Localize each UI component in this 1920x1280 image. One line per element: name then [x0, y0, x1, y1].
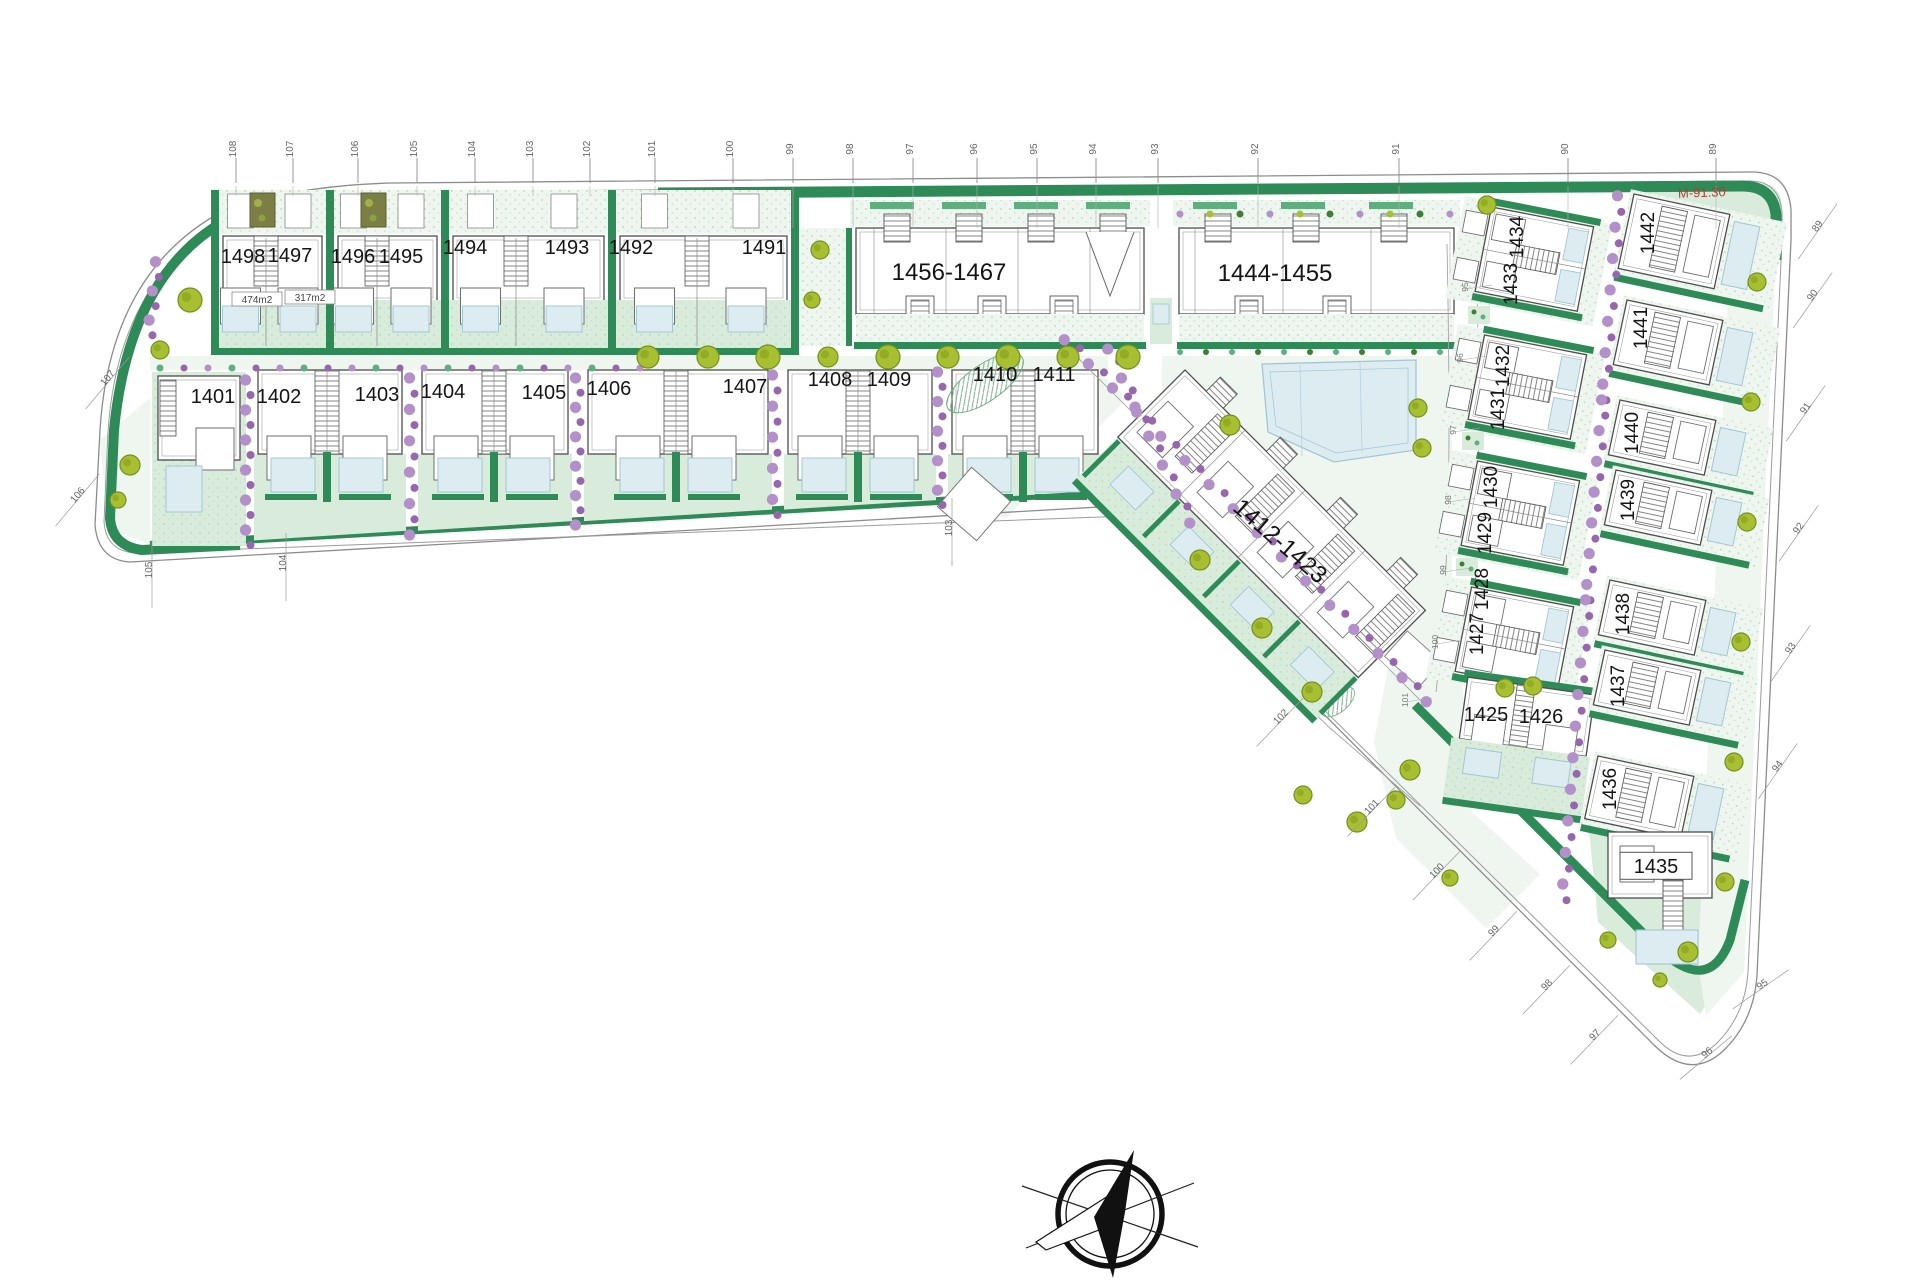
tick-top-92: 92	[1250, 143, 1261, 155]
plot-label-1425: 1425	[1464, 704, 1509, 726]
tick-internal-99: 99	[1438, 565, 1448, 575]
area-label: 317m2	[295, 293, 326, 304]
plot-label-1403: 1403	[355, 384, 400, 406]
tick-perimeter-102: 102	[1271, 707, 1291, 727]
tick-top-93: 93	[1150, 143, 1161, 155]
tick-internal-98: 98	[1443, 495, 1453, 505]
tick-internal-101: 101	[1400, 693, 1410, 707]
plot-label-1407: 1407	[723, 376, 768, 398]
plot-label-1444-1455: 1444-1455	[1218, 260, 1333, 287]
plot-label-1411: 1411	[1032, 364, 1075, 386]
site-plan-drawing: 1081071061051041031021011009998979695949…	[0, 0, 1920, 1280]
tick-top-90: 90	[1560, 143, 1571, 155]
tick-perimeter-90: 90	[1805, 287, 1821, 303]
tick-perimeter-105: 105	[144, 561, 155, 578]
tick-top-100: 100	[725, 140, 736, 157]
tick-top-98: 98	[845, 143, 856, 155]
plot-label-1402: 1402	[257, 386, 302, 408]
plot-label-1437: 1437	[1608, 665, 1629, 707]
plot-label-1493: 1493	[545, 237, 590, 259]
tick-top-103: 103	[525, 140, 536, 157]
plot-label-1498: 1498	[221, 246, 266, 268]
plot-label-1496: 1496	[331, 246, 376, 268]
tick-top-99: 99	[785, 143, 796, 155]
plot-label-1497: 1497	[268, 245, 313, 267]
plot-label-1410: 1410	[973, 364, 1018, 386]
north-needle	[1094, 1150, 1134, 1278]
tick-top-96: 96	[969, 143, 980, 155]
plot-label-1432: 1432	[1493, 345, 1514, 387]
plot-label-1428: 1428	[1472, 568, 1493, 610]
tick-perimeter-89: 89	[1810, 218, 1826, 234]
tick-internal-97: 97	[1448, 425, 1458, 435]
tick-top-89: 89	[1708, 143, 1719, 155]
tick-top-107: 107	[285, 140, 296, 157]
tick-internal-96: 96	[1455, 353, 1465, 363]
plot-label-1492: 1492	[609, 237, 654, 259]
tick-top-108: 108	[228, 140, 239, 157]
tick-top-102: 102	[582, 140, 593, 157]
tick-internal-95: 95	[1460, 282, 1470, 292]
tick-perimeter-104: 104	[278, 554, 289, 571]
plot-label-1495: 1495	[379, 246, 424, 268]
plot-label-1442: 1442	[1638, 212, 1659, 254]
tick-perimeter-92: 92	[1791, 520, 1807, 536]
tick-perimeter-98: 98	[1539, 977, 1555, 993]
tick-top-94: 94	[1088, 143, 1099, 155]
plot-label-1434: 1434	[1507, 215, 1528, 258]
plot-label-1401: 1401	[191, 386, 236, 408]
tick-top-104: 104	[467, 140, 478, 157]
tick-perimeter-103: 103	[944, 519, 955, 536]
tick-top-106: 106	[350, 140, 361, 157]
plot-label-1440: 1440	[1622, 412, 1643, 454]
plot-label-1426: 1426	[1519, 706, 1564, 728]
tick-top-97: 97	[905, 143, 916, 155]
tick-perimeter-94: 94	[1770, 758, 1786, 774]
tick-perimeter-106: 106	[69, 485, 88, 505]
plot-label-1456-1467: 1456-1467	[892, 259, 1007, 286]
tick-top-101: 101	[647, 140, 658, 157]
plot-label-1408: 1408	[808, 369, 853, 391]
tick-top-105: 105	[409, 140, 420, 157]
plot-label-1431: 1431	[1488, 388, 1509, 430]
plot-label-1430: 1430	[1481, 466, 1502, 508]
compass-rose	[1022, 1150, 1198, 1278]
plot-label-1405: 1405	[522, 382, 567, 404]
tick-perimeter-107: 107	[99, 368, 118, 388]
plot-label-1494: 1494	[443, 237, 488, 259]
red-annotation: M-91.30	[1678, 184, 1726, 201]
tick-internal-100: 100	[1430, 635, 1440, 649]
tick-perimeter-91: 91	[1798, 400, 1814, 416]
plot-label-1436: 1436	[1600, 768, 1621, 810]
tick-perimeter-101: 101	[1362, 797, 1382, 817]
plot-label-1427: 1427	[1467, 613, 1488, 655]
tick-perimeter-93: 93	[1783, 640, 1799, 656]
site-plan-root: 1081071061051041031021011009998979695949…	[56, 140, 1838, 1278]
plot-label-1433: 1433	[1501, 263, 1522, 305]
plot-label-1491: 1491	[742, 237, 787, 259]
site-plan-page: 1081071061051041031021011009998979695949…	[0, 0, 1920, 1280]
plot-label-1409: 1409	[867, 369, 912, 391]
plot-label-1439: 1439	[1618, 479, 1639, 521]
plot-label-1435: 1435	[1634, 856, 1679, 878]
tick-perimeter-99: 99	[1486, 923, 1502, 939]
plot-label-1404: 1404	[421, 381, 466, 403]
plot-label-1441: 1441	[1631, 307, 1652, 349]
tick-perimeter-97: 97	[1587, 1027, 1603, 1043]
tick-top-95: 95	[1029, 143, 1040, 155]
plot-label-1429: 1429	[1475, 512, 1496, 554]
tick-top-91: 91	[1391, 143, 1402, 155]
plot-label-1406: 1406	[587, 378, 632, 400]
top-row-plots	[211, 190, 799, 355]
plot-label-1438: 1438	[1613, 593, 1634, 635]
area-label: 474m2	[242, 295, 273, 306]
